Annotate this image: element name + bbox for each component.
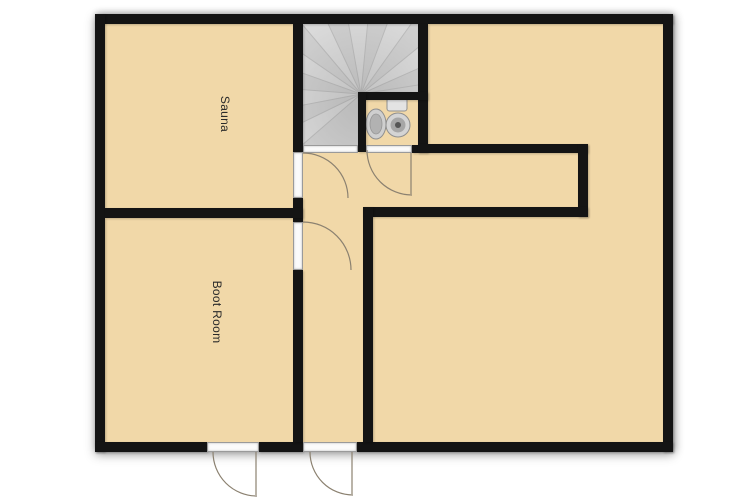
boot-room-label: Boot Room [210, 281, 224, 344]
exterior-door-left-arc [213, 452, 257, 496]
door-swing-arcs [0, 0, 749, 499]
wc-door-arc [367, 150, 412, 195]
floor-plan: Sauna Boot Room [0, 0, 749, 499]
sauna-door-arc [303, 153, 348, 198]
boot-room-door-arc [303, 222, 351, 270]
exterior-door-right-arc [310, 452, 353, 495]
sauna-label: Sauna [218, 96, 232, 132]
